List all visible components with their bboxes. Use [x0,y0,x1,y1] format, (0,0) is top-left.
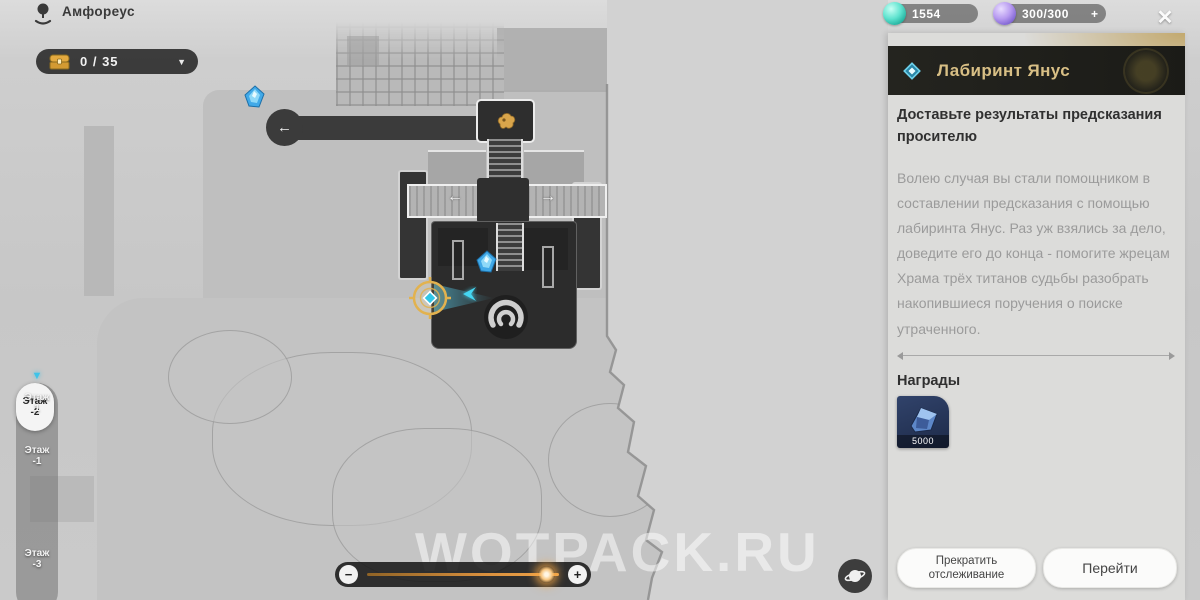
navigate-button[interactable]: Перейти [1043,548,1177,588]
close-icon[interactable]: ✕ [1150,2,1180,32]
map-stairs [496,223,524,271]
purple-gem-icon [993,2,1016,25]
quest-marker-box[interactable] [476,99,535,143]
arrow-left-icon: ← [447,188,463,206]
chevron-down-icon[interactable]: ▼ [177,57,186,67]
quest-objective: Доставьте результаты предсказания просит… [897,105,1175,149]
faction-emblem [1123,48,1169,94]
chest-icon [49,53,70,70]
floor-pointer-icon: ▼ [16,371,58,382]
map-ledge [524,150,584,186]
location-name: Амфореус [62,4,135,19]
chest-counter-value: 0 / 35 [80,54,119,69]
treasure-gem-marker[interactable] [474,249,500,275]
zoom-slider-handle[interactable] [538,566,555,583]
floor-item--1[interactable]: Этаж -1 [16,445,58,467]
quest-title: Лабиринт Янус [937,61,1070,81]
map-screen: ← ← → [0,0,1200,600]
quest-description: Волею случая вы стали помощником в соста… [897,166,1175,342]
planet-icon [844,565,866,587]
map-corridor [296,116,492,140]
map-slot [542,246,554,288]
direction-arrow-icon [461,286,477,302]
stop-tracking-button[interactable]: Прекратить отслеживание [897,548,1036,588]
quest-details: Доставьте результаты предсказания просит… [897,105,1175,448]
currency-stellar[interactable]: 1554 [886,4,978,23]
currency-power[interactable]: 300/300 + [996,4,1106,23]
floor-item--3[interactable]: Этаж -3 [16,548,58,570]
map-zoom-slider: − + [335,562,591,587]
quest-marker-icon [493,110,519,132]
zoom-slider-track[interactable] [367,573,559,576]
location-pin-icon [32,1,54,27]
quest-diamond-icon [901,60,923,82]
reward-item-credits[interactable]: 5000 [897,396,949,448]
rewards-heading: Награды [897,373,1175,389]
arrow-left-icon: ← [277,119,292,136]
credit-crystal-icon [897,398,949,438]
map-center-room [477,178,529,223]
zoom-in-button[interactable]: + [568,565,587,584]
add-currency-button[interactable]: + [1091,7,1098,21]
map-corridor-arrow: ← [266,109,303,146]
floor-item-1[interactable]: Этаж 1 [16,392,58,414]
reward-amount: 5000 [897,435,949,448]
teleporter-arc-marker[interactable] [483,294,529,340]
player-position-marker [406,274,454,322]
chest-counter[interactable]: 0 / 35 ▼ [36,49,198,74]
currency-power-value: 300/300 [1022,7,1069,21]
tracked-signal-button[interactable] [838,559,872,593]
scroll-divider [897,352,1175,360]
teal-gem-icon [883,2,906,25]
zoom-out-button[interactable]: − [339,565,358,584]
treasure-gem-marker[interactable] [242,84,268,110]
quest-header: Лабиринт Янус [888,46,1185,95]
floor-selector: Этаж 1 Этаж -1 ▼ Этаж -2 Этаж -3 [16,383,58,600]
divider-arrow-right [1169,352,1175,360]
quest-panel: Лабиринт Янус Доставьте результаты предс… [888,33,1185,600]
arrow-right-icon: → [540,188,556,206]
currency-stellar-value: 1554 [912,7,941,21]
